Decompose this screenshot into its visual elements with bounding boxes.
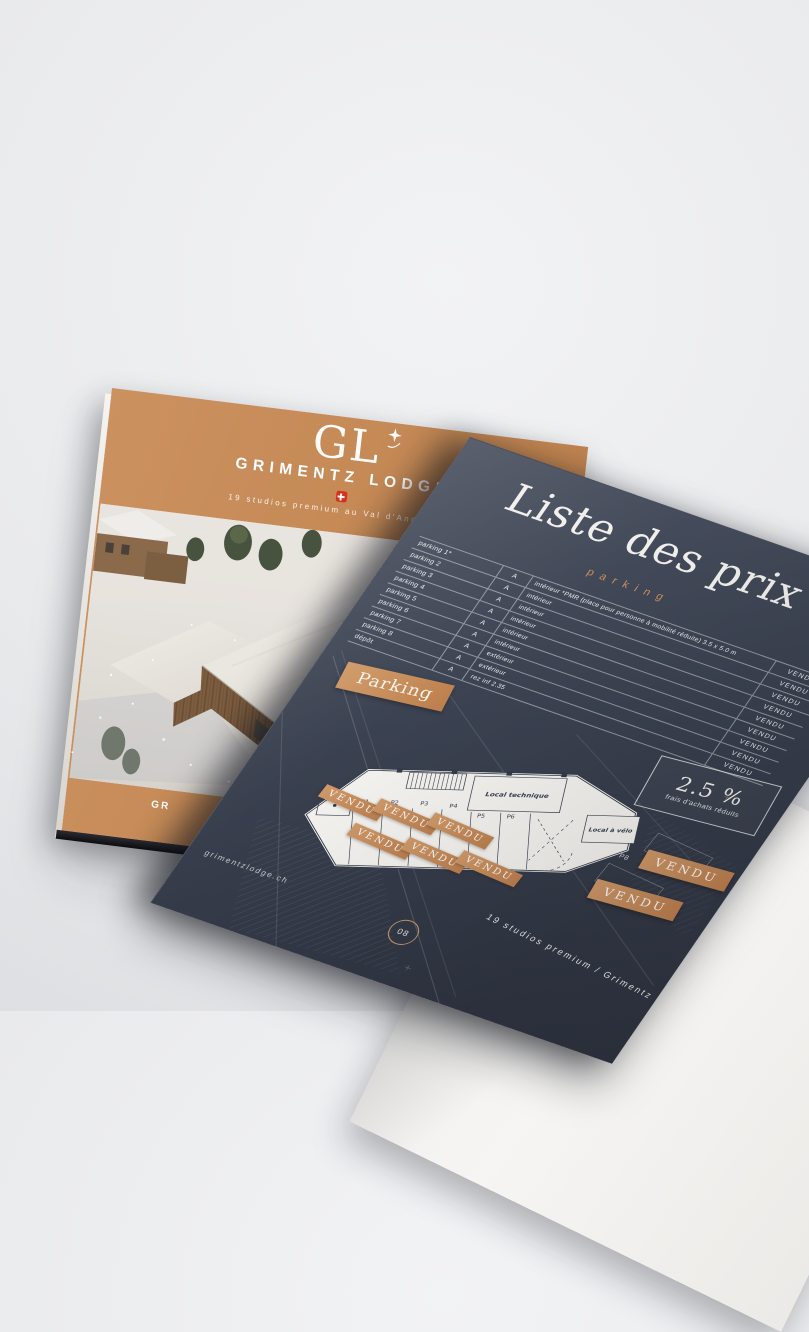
gl-logo: GL [310, 418, 383, 472]
plan-spot-label: P5 [476, 813, 486, 819]
plan-spot-label: P3 [419, 801, 429, 807]
logo-star-icon [386, 427, 405, 451]
gl-logo-text: GL [310, 415, 384, 474]
plan-spot-label: P4 [449, 803, 459, 809]
room-label-local-a-velo: Local à vélo [588, 826, 633, 834]
floor-plan: P1 P2 P3 P4 P5 P6 Local technique Local … [287, 748, 659, 885]
plan-spot-label: P6 [506, 814, 516, 820]
page-number: 08 [395, 926, 412, 938]
swiss-cross-icon [335, 491, 347, 503]
cover-footer-text: GR [151, 799, 171, 812]
mockup-scene: GL GRIMENTZ LODGE 19 studios premium au … [0, 0, 809, 1011]
